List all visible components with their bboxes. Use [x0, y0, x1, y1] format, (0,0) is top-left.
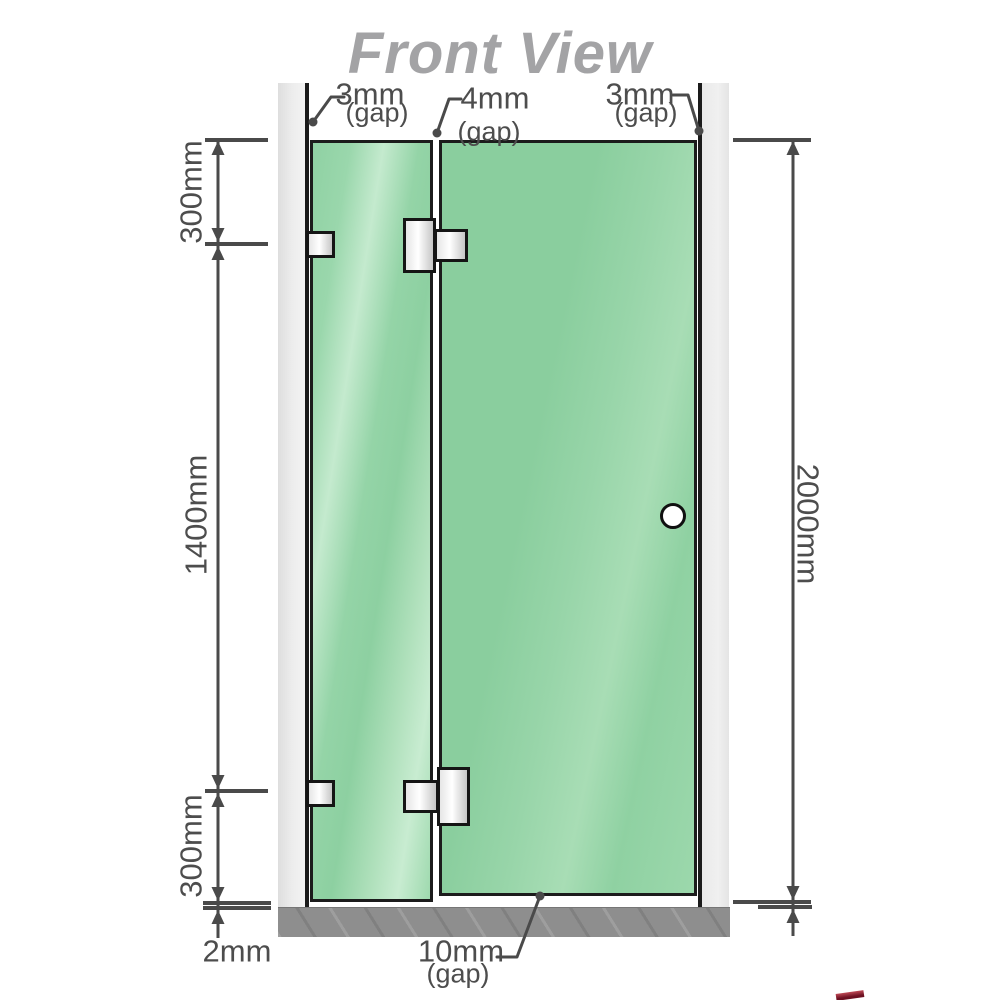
- gap-top-left-qualifier: (gap): [345, 100, 408, 127]
- right-wall-post: [702, 83, 729, 907]
- hinge-bottom-fixed-plate: [403, 780, 439, 813]
- right-wall-post-edge: [698, 83, 702, 907]
- door-handle-knob: [660, 503, 686, 529]
- dim-right-total-label: 2000mm: [793, 464, 824, 585]
- dim-left-middle-label: 1400mm: [181, 455, 212, 576]
- shower-screen-front-view-diagram: Front View: [0, 0, 1000, 1000]
- wall-bracket-top: [306, 231, 335, 258]
- gap-top-right-qualifier: (gap): [614, 100, 677, 127]
- floor: [278, 907, 730, 937]
- diagram-title: Front View: [0, 20, 1000, 87]
- gap-middle-qualifier: (gap): [457, 119, 520, 146]
- dim-left-bottom-label: 300mm: [176, 794, 207, 897]
- left-wall-post: [278, 83, 305, 907]
- hinge-top-fixed-plate: [403, 218, 436, 273]
- hinge-bottom-door-plate: [437, 767, 470, 826]
- gap-bottom-qualifier: (gap): [426, 961, 489, 988]
- dim-left-top-label: 300mm: [176, 140, 207, 243]
- wall-bracket-bottom: [306, 780, 335, 807]
- watermark-fragment: [836, 990, 865, 1000]
- gap-middle-value: 4mm: [461, 83, 530, 114]
- door-glass-panel: [439, 140, 697, 896]
- floor-clearance-label: 2mm: [203, 936, 272, 967]
- hinge-top-door-plate: [434, 229, 468, 262]
